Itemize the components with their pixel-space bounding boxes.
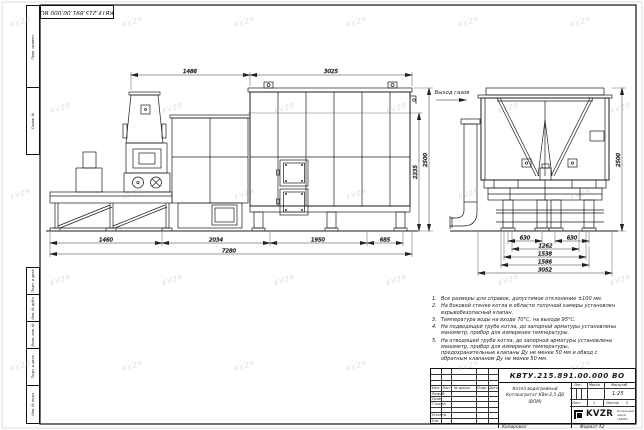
dim-side-mid-1: 1262 bbox=[539, 244, 553, 250]
company-cell: KVZR Котельный завод «КВЗР» bbox=[570, 406, 635, 423]
row-prov: Пров. bbox=[432, 397, 442, 401]
designation-cell: КВТУ.215.891.00.000 ВО bbox=[498, 369, 636, 383]
sheets-label: Листов bbox=[606, 401, 619, 405]
margin-column-bottom: Подп. и дата Инв. № дубл. Взам. инв. № П… bbox=[26, 267, 40, 424]
gas-outlet-label: Выход газов bbox=[435, 90, 470, 96]
dim-front-bottom-1: 1460 bbox=[99, 238, 113, 244]
margin-cell: Перв. примен. bbox=[27, 6, 39, 88]
company-line2: «КВЗР» bbox=[617, 417, 628, 421]
sheets-value: 2 bbox=[626, 401, 628, 405]
dim-front-top-2: 3025 bbox=[324, 69, 338, 75]
dim-front-bottom-2: 2034 bbox=[209, 238, 223, 244]
product-name-line2: Котлоагрегат КВм-2,5-ДВ (ВПМ) bbox=[506, 393, 564, 404]
note-text: Все размеры для справок, допустимое откл… bbox=[441, 296, 624, 302]
title-block-left-grid: Изм. Лист № докум. Подп. Дата Разраб. Пр… bbox=[431, 369, 498, 423]
lit-label: Лит. bbox=[574, 383, 582, 387]
dim-side-630a: 630 bbox=[520, 236, 531, 242]
th-dokum: № докум. bbox=[454, 386, 471, 390]
note-number: 2. bbox=[432, 303, 441, 316]
margin-label: Инв. № дубл. bbox=[31, 296, 35, 319]
title-block: Изм. Лист № докум. Подп. Дата Разраб. Пр… bbox=[430, 368, 636, 424]
th-podp: Подп. bbox=[477, 386, 487, 390]
margin-cell: Взам. инв. № bbox=[27, 322, 39, 349]
margin-label: Перв. примен. bbox=[31, 34, 35, 59]
kvzr-logo-icon bbox=[574, 410, 583, 419]
gas-outlet-callout: Выход газов bbox=[435, 90, 470, 100]
note-item: 5. На отводящей трубе котла, до запорной… bbox=[432, 338, 624, 363]
footer-format-label: Формат А2 bbox=[580, 425, 604, 430]
scale-label: Масштаб bbox=[611, 383, 627, 387]
margin-cell: Подп. и дата bbox=[27, 349, 39, 386]
scale-value: 1:25 bbox=[612, 391, 624, 397]
dim-side-630b: 630 bbox=[567, 236, 578, 242]
note-item: 1. Все размеры для справок, допустимое о… bbox=[432, 296, 624, 302]
sheet-label: Лист bbox=[572, 401, 581, 405]
note-item: 2. На боковой стенке котла в области топ… bbox=[432, 303, 624, 316]
th-list: Лист bbox=[442, 386, 451, 390]
th-izm: Изм. bbox=[432, 386, 440, 390]
side-dimensions: 630 630 1262 1538 1586 3052 2500 bbox=[478, 88, 626, 276]
notes-block: 1. Все размеры для справок, допустимое о… bbox=[432, 296, 624, 364]
note-number: 4. bbox=[432, 324, 441, 337]
dim-front-total: 7280 bbox=[222, 249, 236, 255]
note-text: На подводящей трубе котла, до запорной а… bbox=[441, 324, 624, 337]
row-razrab: Разраб. bbox=[432, 392, 445, 396]
front-dimensions: 1486 3025 2235 2500 1460 2034 1950 685 bbox=[50, 69, 433, 257]
row-utv: Утв. bbox=[432, 419, 439, 423]
dim-side-mid-3: 1586 bbox=[538, 260, 552, 266]
margin-label: Справ. № bbox=[31, 113, 35, 130]
note-item: 3. Температура воды на входе 70°С, на вы… bbox=[432, 317, 624, 323]
margin-cell: Справ. № bbox=[27, 88, 39, 154]
margin-label: Инв. № подл. bbox=[31, 392, 35, 415]
margin-column-top: Перв. примен. Справ. № bbox=[26, 5, 40, 155]
mass-label: Масса bbox=[589, 383, 600, 387]
drawing-canvas: Выход газов 1486 3025 2235 2500 bbox=[0, 0, 644, 430]
corner-designation-stamp: КВТУ.215.891.00.000 ВО bbox=[40, 5, 114, 19]
th-data: Дата bbox=[489, 386, 498, 390]
note-number: 1. bbox=[432, 296, 441, 302]
dim-front-bottom-3: 1950 bbox=[311, 238, 325, 244]
note-text: Температура воды на входе 70°С, на выход… bbox=[441, 317, 624, 323]
side-view bbox=[450, 88, 618, 231]
sheet-value: 1 bbox=[593, 401, 595, 405]
note-number: 5. bbox=[432, 338, 441, 363]
row-nkontr: Н.контр. bbox=[432, 413, 447, 417]
kvzr-logo-text: KVZR bbox=[586, 409, 613, 419]
margin-label: Подп. и дата bbox=[31, 355, 35, 378]
dim-side-total: 3052 bbox=[538, 268, 552, 274]
dim-front-top-1: 1486 bbox=[183, 69, 197, 75]
margin-label: Взам. инв. № bbox=[31, 323, 35, 346]
note-item: 4. На подводящей трубе котла, до запорно… bbox=[432, 324, 624, 337]
front-view bbox=[46, 82, 418, 231]
drawing-sheet: Выход газов 1486 3025 2235 2500 bbox=[0, 0, 644, 430]
margin-cell: Инв. № подл. bbox=[27, 386, 39, 422]
margin-cell: Инв. № дубл. bbox=[27, 295, 39, 322]
note-text: На боковой стенке котла в области топочн… bbox=[441, 303, 624, 316]
title-block-right-grid: Лит. Масса Масштаб 1:25 Лист 1 Листов 2 … bbox=[570, 382, 635, 423]
corner-designation-text: КВТУ.215.891.00.000 ВО bbox=[40, 9, 114, 15]
row-tkontr: Т.контр. bbox=[432, 402, 447, 406]
frame bbox=[2, 2, 642, 428]
margin-cell: Подп. и дата bbox=[27, 268, 39, 295]
product-name-cell: Котел водогрейный Котлоагрегат КВм-2,5-Д… bbox=[498, 382, 572, 428]
dim-side-mid-2: 1538 bbox=[538, 252, 552, 258]
company-name: Котельный завод «КВЗР» bbox=[617, 410, 635, 421]
product-name-line1: Котел водогрейный bbox=[512, 387, 557, 392]
dim-front-height-2: 2500 bbox=[423, 153, 429, 167]
note-number: 3. bbox=[432, 317, 441, 323]
dim-front-height-1: 2235 bbox=[413, 165, 419, 179]
dim-side-height: 2500 bbox=[616, 153, 622, 167]
note-text: На отводящей трубе котла, до запорной ар… bbox=[441, 338, 624, 363]
margin-label: Подп. и дата bbox=[31, 269, 35, 292]
dim-front-bottom-4: 685 bbox=[380, 238, 391, 244]
